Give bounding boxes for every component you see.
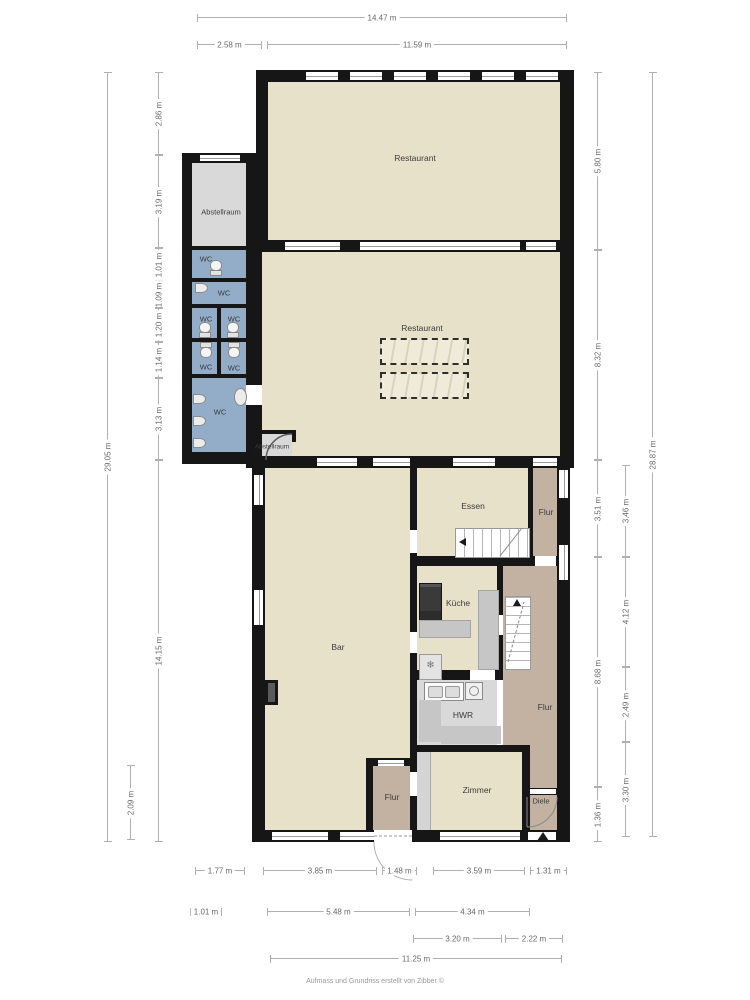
dimension-line: 3.46 m: [625, 465, 626, 557]
door-opening: [470, 670, 495, 680]
wall: [557, 456, 570, 842]
window: [526, 72, 558, 80]
window: [378, 760, 404, 766]
footer-credit: Aufmass und Grundriss erstellt von Zibbe…: [306, 978, 444, 985]
wall: [252, 456, 265, 842]
dimension-line: 8.32 m: [597, 250, 598, 460]
dimension-label: 8.68 m: [594, 657, 603, 687]
dimension-line: 11.25 m: [270, 958, 562, 959]
door-opening: [410, 632, 417, 653]
sink-icon: [193, 438, 206, 448]
window: [200, 155, 240, 161]
window: [360, 242, 520, 250]
entrance-opening: [374, 830, 412, 842]
room-abstellraum-1: [192, 163, 246, 248]
room-label-abstellraum-2: Abstellraum: [255, 444, 289, 451]
window: [438, 72, 470, 80]
dimension-line: 3.59 m: [433, 870, 525, 871]
window: [373, 458, 410, 466]
window: [272, 832, 328, 840]
door-opening: [535, 556, 556, 566]
dimension-label: 11.25 m: [399, 955, 433, 964]
dimension-label: 2.09 m: [127, 787, 136, 817]
wall: [366, 758, 373, 830]
dimension-label: 1.77 m: [205, 867, 235, 876]
dimension-line: 14.47 m: [197, 17, 567, 18]
room-label-restaurant-middle: Restaurant: [401, 323, 443, 333]
kitchen-counter: [419, 620, 471, 638]
window: [559, 470, 568, 498]
stairs-arrow-icon: [459, 538, 466, 546]
dimension-line: 1.01 m: [158, 248, 159, 281]
dimension-label: 1.09 m: [155, 279, 164, 309]
dimension-line: 3.13 m: [158, 378, 159, 460]
dimension-line: 2.86 m: [158, 72, 159, 155]
dimension-line: 2.49 m: [625, 667, 626, 742]
wall: [246, 153, 262, 468]
dimension-label: 5.80 m: [594, 146, 603, 176]
wall: [246, 430, 294, 434]
sink-icon: [193, 394, 206, 404]
dimension-line: 5.48 m: [267, 911, 410, 912]
dimension-label: 2.86 m: [155, 98, 164, 128]
sink-basin: [445, 686, 460, 698]
dimension-line: 3.30 m: [625, 742, 626, 837]
dimension-label: 3.46 m: [622, 496, 631, 526]
toilet-icon: [227, 322, 240, 338]
dimension-label: 1.31 m: [533, 867, 563, 876]
dimension-label: 1.01 m: [155, 249, 164, 279]
wall: [560, 70, 574, 252]
dimension-line: 3.51 m: [597, 460, 598, 557]
window: [482, 72, 514, 80]
window: [394, 72, 426, 80]
dimension-label: 3.59 m: [464, 867, 494, 876]
dimension-label: 3.19 m: [155, 186, 164, 216]
dimension-label: 11.59 m: [400, 41, 434, 50]
freezer-icon: ❄: [419, 654, 442, 680]
hwr-counter: [419, 700, 441, 742]
dimension-label: 28.87 m: [649, 437, 658, 472]
wall-bump: [265, 680, 278, 705]
window: [533, 458, 557, 466]
washer-icon: [465, 682, 483, 700]
dimension-line: 3.85 m: [263, 870, 377, 871]
dimension-line: 29.05 m: [107, 72, 108, 842]
window: [285, 242, 340, 250]
dimension-line: 1.01 m: [190, 911, 222, 912]
room-label-wc-7: WC: [214, 408, 227, 417]
dimension-label: 1.20 m: [155, 310, 164, 340]
dimension-label: 5.48 m: [323, 908, 353, 917]
dimension-line: 8.68 m: [597, 557, 598, 787]
wall: [182, 153, 192, 464]
room-label-wc-5: WC: [200, 363, 213, 372]
room-label-flur-1: Flur: [539, 507, 554, 517]
room-label-wc-4: WC: [228, 315, 241, 324]
restaurant-table: [380, 372, 469, 399]
dimension-label: 1.14 m: [155, 345, 164, 375]
dimension-line: 1.31 m: [530, 870, 567, 871]
dimension-line: 3.20 m: [413, 938, 502, 939]
room-label-hwr: HWR: [453, 710, 473, 720]
dimension-label: 4.12 m: [622, 597, 631, 627]
toilet-icon: [199, 322, 212, 338]
dimension-label: 2.22 m: [519, 935, 549, 944]
dimension-label: 2.49 m: [622, 689, 631, 719]
hwr-counter: [441, 726, 501, 744]
dimension-label: 3.13 m: [155, 404, 164, 434]
dimension-line: 5.80 m: [597, 72, 598, 250]
room-label-diele: Diele: [532, 797, 549, 806]
dimension-label: 3.85 m: [305, 867, 335, 876]
dimension-line: 4.34 m: [415, 911, 530, 912]
wall: [410, 745, 530, 752]
dimension-line: 1.77 m: [195, 870, 245, 871]
sink-icon: [193, 416, 206, 426]
dimension-label: 4.34 m: [457, 908, 487, 917]
room-label-flur-3: Flur: [385, 792, 400, 802]
room-label-kueche: Küche: [446, 598, 470, 608]
dimension-line: 1.14 m: [158, 342, 159, 378]
room-label-wc-3: WC: [200, 315, 213, 324]
dimension-label: 14.15 m: [155, 634, 164, 669]
stairs-arrow-icon: [513, 599, 521, 606]
wall: [192, 278, 246, 282]
dimension-label: 1.48 m: [384, 867, 414, 876]
staircase: [455, 528, 530, 558]
room-label-wc-1: WC: [200, 255, 213, 264]
room-label-wc-6: WC: [228, 364, 241, 373]
door-opening: [410, 772, 417, 796]
room-label-abstellraum-1: Abstellraum: [201, 208, 241, 217]
floor-plan: ❄ Aufmass und Grundriss erstellt von Zib…: [0, 0, 750, 1000]
room-label-bar: Bar: [331, 642, 344, 652]
dimension-label: 2.58 m: [214, 41, 244, 50]
dimension-line: 4.12 m: [625, 557, 626, 667]
door-opening: [530, 789, 556, 794]
dimension-label: 3.51 m: [594, 493, 603, 523]
room-label-restaurant-upper: Restaurant: [394, 153, 436, 163]
toilet-icon: [199, 342, 212, 358]
kitchen-counter: [478, 590, 499, 670]
dimension-label: 1.36 m: [594, 799, 603, 829]
dimension-label: 1.01 m: [191, 908, 221, 917]
window: [350, 72, 382, 80]
door-opening: [410, 530, 417, 553]
dimension-label: 8.32 m: [594, 340, 603, 370]
window: [453, 458, 495, 466]
wall: [560, 240, 574, 468]
window: [254, 475, 263, 505]
dimension-line: 11.59 m: [267, 44, 567, 45]
dimension-line: 1.20 m: [158, 308, 159, 342]
window: [317, 458, 357, 466]
room-label-essen: Essen: [461, 501, 485, 511]
wall: [182, 452, 262, 464]
window: [526, 242, 556, 250]
dimension-line: 3.19 m: [158, 155, 159, 248]
window: [306, 72, 338, 80]
toilet-icon: [227, 342, 240, 358]
window: [440, 832, 520, 840]
restaurant-table: [380, 338, 469, 365]
dimension-label: 29.05 m: [104, 440, 113, 475]
dimension-line: 1.36 m: [597, 787, 598, 842]
dimension-line: 2.09 m: [130, 765, 131, 840]
dimension-line: 1.48 m: [382, 870, 417, 871]
dimension-line: 28.87 m: [652, 72, 653, 837]
sink-basin: [428, 686, 443, 698]
hwr-sink-icon: [424, 682, 464, 701]
wall: [217, 304, 221, 378]
staircase: [505, 596, 531, 670]
dimension-label: 3.30 m: [622, 774, 631, 804]
entrance-arrow-icon: [537, 832, 549, 841]
door-opening: [246, 385, 262, 405]
basin-icon: [234, 388, 247, 406]
dimension-line: 14.15 m: [158, 460, 159, 842]
room-label-wc-2: WC: [218, 289, 231, 298]
dimension-label: 14.47 m: [365, 14, 400, 23]
wall: [292, 430, 296, 442]
stove-icon: [419, 583, 442, 624]
dimension-line: 2.58 m: [197, 44, 262, 45]
dimension-label: 3.20 m: [442, 935, 472, 944]
sink-icon: [195, 283, 208, 293]
wall: [192, 246, 246, 250]
window: [559, 545, 568, 580]
room-zimmer-closet: [417, 752, 431, 830]
window: [254, 590, 263, 625]
dimension-line: 2.22 m: [505, 938, 563, 939]
room-label-flur-2: Flur: [538, 702, 553, 712]
room-label-zimmer: Zimmer: [463, 785, 492, 795]
dimension-line: 1.09 m: [158, 281, 159, 308]
